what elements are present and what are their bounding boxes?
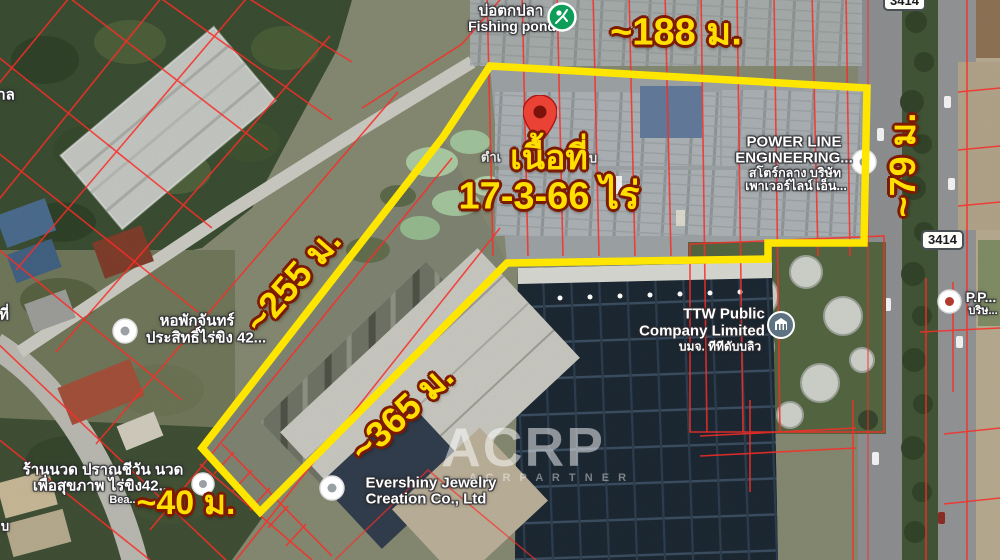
watermark-logo: ACRP <box>441 415 605 479</box>
pp-label-thai: บริษ... <box>968 305 997 317</box>
powerline-label-line2: ENGINEERING... <box>735 151 853 168</box>
ttw-label-thai: บมจ. ทีทีดับบลิว <box>679 340 761 353</box>
dimension-top: ~188 ม. <box>610 12 742 55</box>
area-value: 17-3-66 ไร่ <box>458 176 639 219</box>
powerline-label-thai1: สโตร์กลาง บริษัท <box>749 166 841 180</box>
location-pin-icon <box>523 95 557 143</box>
map-text-fragment-left-upper: าล <box>0 88 15 105</box>
fishing-icon <box>546 1 578 33</box>
watermark-tagline: A C R P A R T N E R <box>469 472 629 484</box>
massage-label-sub: Bea... <box>109 494 138 506</box>
pp-label: P.P... <box>966 290 997 306</box>
dormitory-poi-icon <box>111 317 139 345</box>
dimension-west-end: ~40 ม. <box>137 484 236 522</box>
ttw-building-icon <box>766 310 796 340</box>
route-shield-top: 3414 <box>883 0 926 11</box>
land-plot-map-screenshot: าล ที่ บ ตำเ บ บ่อตกปลา Fishing pond POW… <box>0 0 1000 560</box>
dormitory-label-thai1: หอพักจันทร์ <box>160 314 235 331</box>
district-label-fragment-left: ตำเ <box>481 151 501 166</box>
dimension-right: ~79 ม. <box>883 113 923 218</box>
powerline-label-thai2: เพาเวอร์ไลน์ เอ็น... <box>745 179 847 193</box>
dormitory-label-thai2: ประสิทธิ์ไร่ขิง 42... <box>146 331 266 348</box>
map-text-fragment-left-middle: ที่ <box>0 308 9 325</box>
route-shield-middle: 3414 <box>921 230 964 250</box>
pp-poi-icon <box>936 288 963 315</box>
district-label-fragment-right: บ <box>589 152 597 167</box>
area-title: เนื้อที่ <box>510 139 588 177</box>
ttw-label-line2: Company Limited <box>639 324 765 341</box>
map-text-fragment-bottom-left: บ <box>1 520 9 535</box>
evershiny-label-line2: Creation Co., Ltd <box>366 492 487 509</box>
fishing-pond-label-en: Fishing pond <box>468 19 556 35</box>
ttw-label-line1: TTW Public <box>683 307 765 324</box>
evershiny-poi-icon <box>318 474 346 502</box>
